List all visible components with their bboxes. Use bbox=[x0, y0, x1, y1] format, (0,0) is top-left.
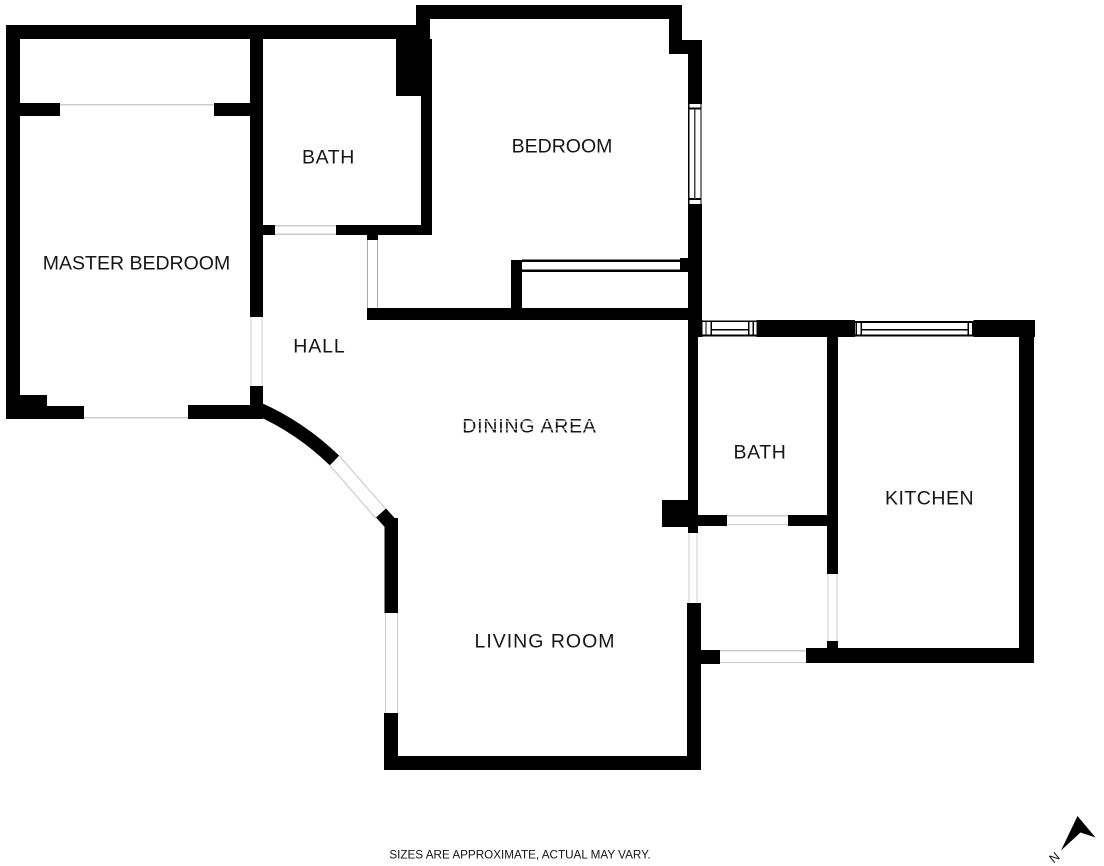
svg-text:DINING AREA: DINING AREA bbox=[462, 416, 597, 438]
svg-text:BATH: BATH bbox=[734, 442, 787, 464]
svg-text:KITCHEN: KITCHEN bbox=[885, 488, 974, 510]
svg-text:SIZES ARE APPROXIMATE, ACTUAL: SIZES ARE APPROXIMATE, ACTUAL MAY VARY. bbox=[389, 849, 650, 862]
svg-text:LIVING ROOM: LIVING ROOM bbox=[474, 631, 615, 653]
svg-text:MASTER BEDROOM: MASTER BEDROOM bbox=[43, 253, 230, 275]
svg-text:BATH: BATH bbox=[302, 147, 355, 169]
svg-text:HALL: HALL bbox=[293, 336, 345, 358]
svg-text:BEDROOM: BEDROOM bbox=[512, 136, 613, 158]
